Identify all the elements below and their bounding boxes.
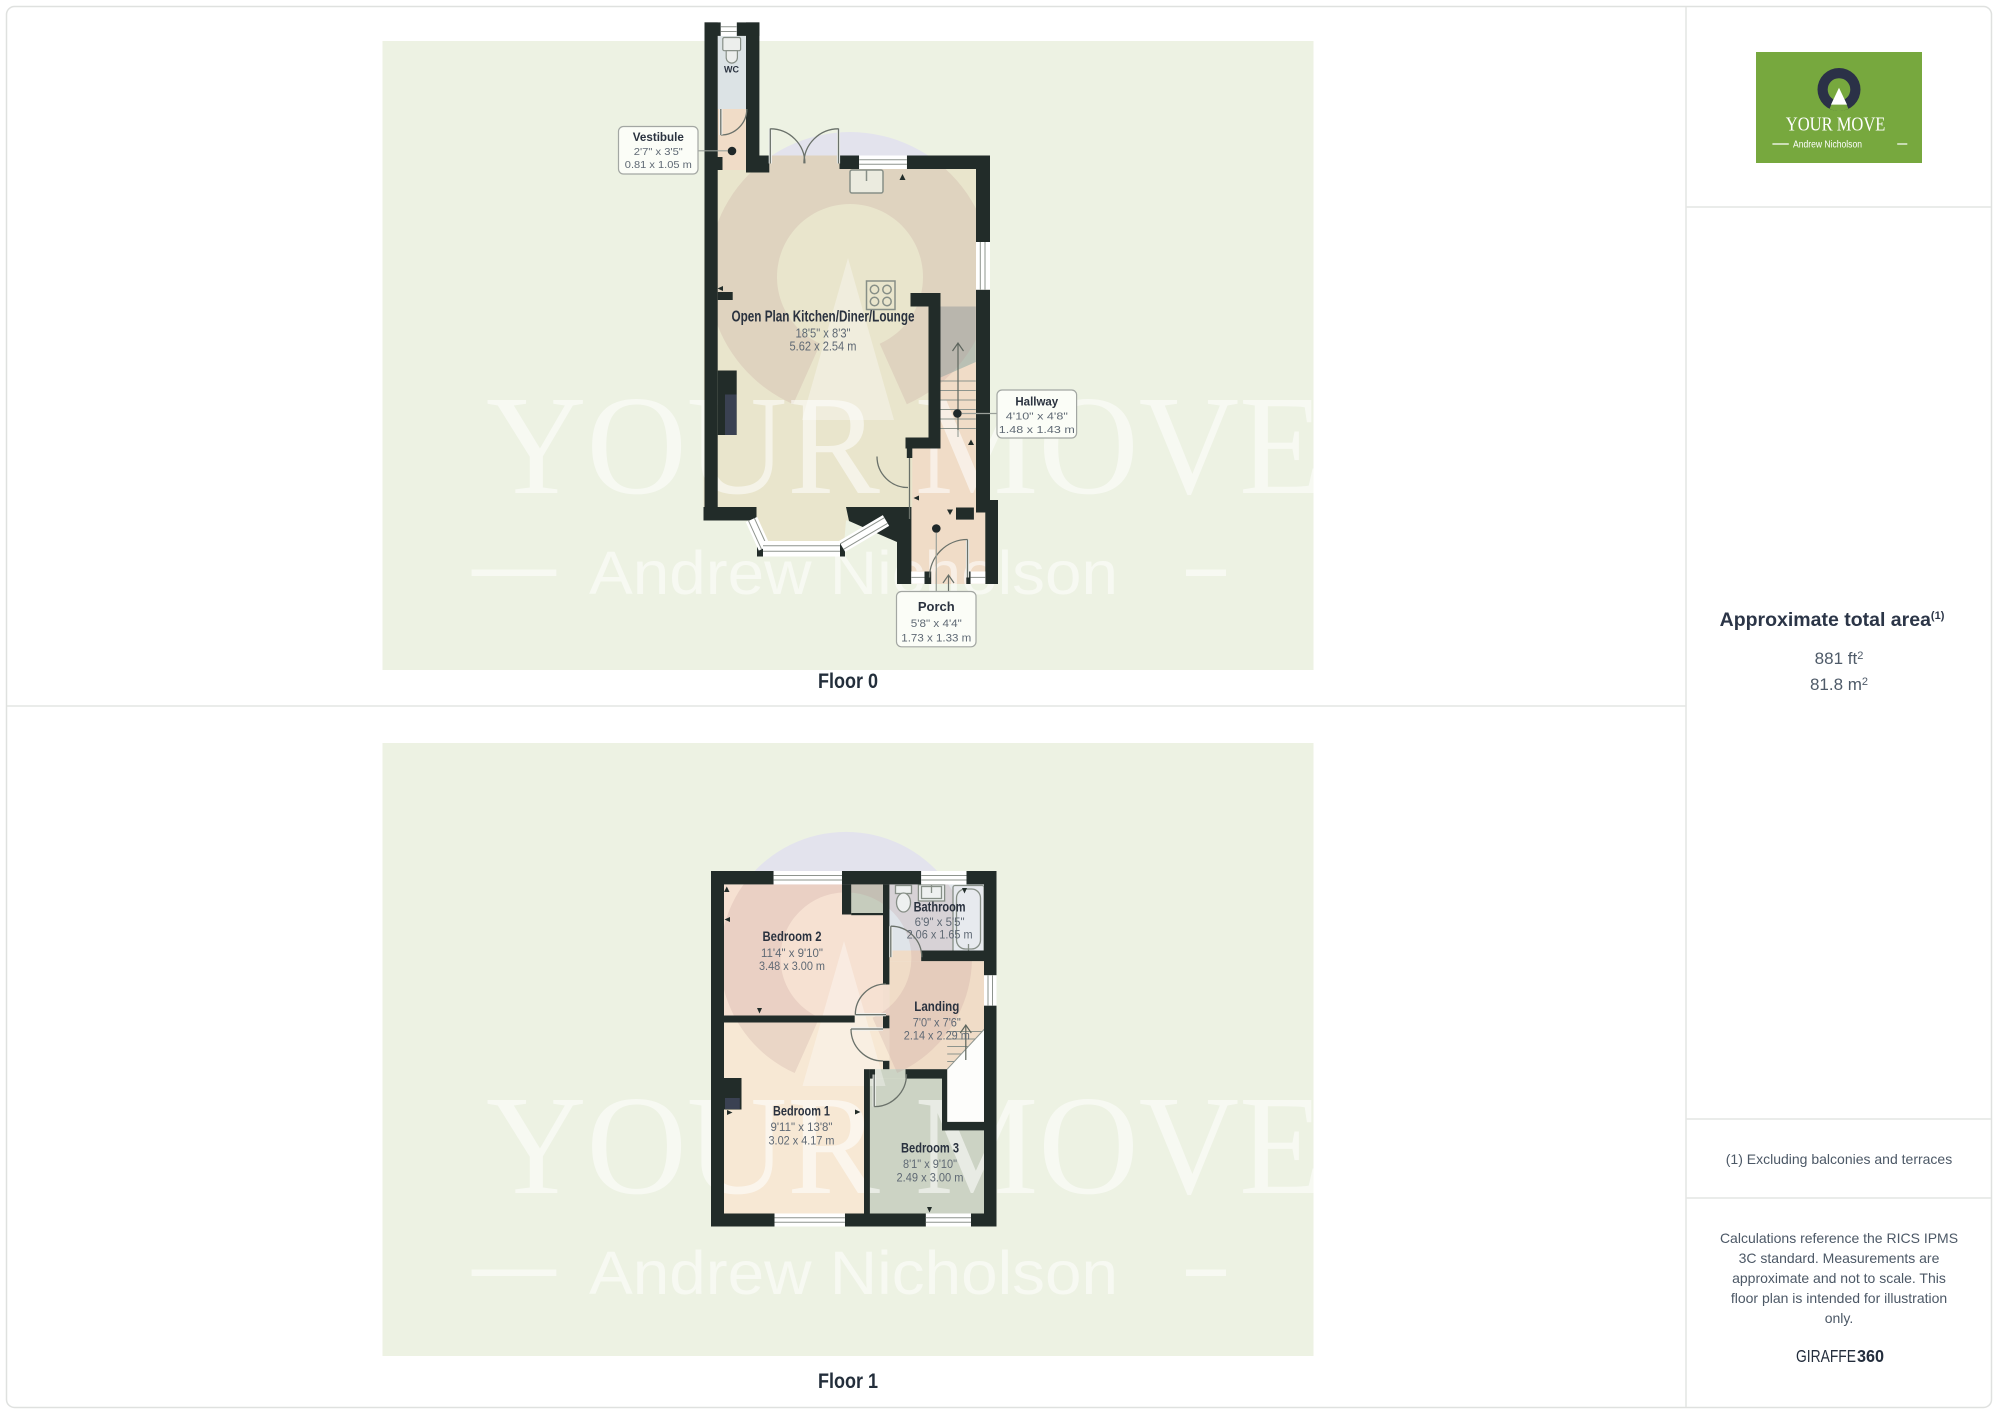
svg-text:Bedroom 3: Bedroom 3 <box>901 1141 959 1156</box>
svg-text:YOUR MOVE: YOUR MOVE <box>486 366 1324 524</box>
svg-text:WC: WC <box>724 65 739 75</box>
svg-text:Porch: Porch <box>918 599 955 614</box>
svg-text:18'5" x 8'3": 18'5" x 8'3" <box>796 327 851 341</box>
svg-text:GIRAFFE: GIRAFFE <box>1796 1346 1856 1366</box>
svg-text:only.: only. <box>1825 1310 1854 1326</box>
svg-text:6'9" x 5'5": 6'9" x 5'5" <box>915 917 965 929</box>
svg-text:Andrew Nicholson: Andrew Nicholson <box>1793 140 1862 151</box>
svg-text:2.06 x 1.65 m: 2.06 x 1.65 m <box>907 930 973 942</box>
svg-text:Bedroom 1: Bedroom 1 <box>773 1104 830 1119</box>
svg-text:Bedroom 2: Bedroom 2 <box>763 929 822 944</box>
svg-text:0.81 x 1.05 m: 0.81 x 1.05 m <box>625 159 692 171</box>
svg-text:Andrew Nicholson: Andrew Nicholson <box>589 539 1118 607</box>
svg-text:7'0" x 7'6": 7'0" x 7'6" <box>913 1018 961 1030</box>
svg-text:2.49 x 3.00 m: 2.49 x 3.00 m <box>897 1173 964 1185</box>
svg-text:5.62 x 2.54 m: 5.62 x 2.54 m <box>790 340 857 354</box>
svg-text:Floor 0: Floor 0 <box>818 670 878 693</box>
svg-text:YOUR MOVE: YOUR MOVE <box>1786 114 1886 136</box>
svg-text:Landing: Landing <box>914 999 959 1014</box>
svg-text:Vestibule: Vestibule <box>633 132 684 144</box>
svg-text:8'1" x 9'10": 8'1" x 9'10" <box>903 1159 957 1171</box>
svg-text:(1) Excluding balconies and te: (1) Excluding balconies and terraces <box>1726 1151 1952 1167</box>
svg-text:4'10" x 4'8": 4'10" x 4'8" <box>1006 411 1068 423</box>
svg-text:11'4" x 9'10": 11'4" x 9'10" <box>761 948 823 960</box>
svg-text:Hallway: Hallway <box>1015 397 1058 409</box>
svg-text:9'11" x 13'8": 9'11" x 13'8" <box>771 1122 833 1134</box>
svg-text:81.8 m2: 81.8 m2 <box>1810 675 1868 694</box>
svg-text:5'8" x 4'4": 5'8" x 4'4" <box>911 618 962 630</box>
svg-text:360: 360 <box>1857 1346 1884 1366</box>
svg-text:Floor 1: Floor 1 <box>818 1370 878 1393</box>
svg-text:3.48 x 3.00 m: 3.48 x 3.00 m <box>759 961 825 973</box>
svg-text:3C standard. Measurements are: 3C standard. Measurements are <box>1739 1250 1940 1266</box>
svg-text:Andrew Nicholson: Andrew Nicholson <box>589 1239 1118 1307</box>
svg-text:2.14 x 2.29 m: 2.14 x 2.29 m <box>904 1031 970 1043</box>
svg-text:3.02 x 4.17 m: 3.02 x 4.17 m <box>769 1136 835 1148</box>
svg-text:floor plan is intended for ill: floor plan is intended for illustration <box>1731 1290 1947 1306</box>
svg-text:881 ft2: 881 ft2 <box>1815 649 1864 668</box>
svg-text:Calculations reference the RIC: Calculations reference the RICS IPMS <box>1720 1230 1958 1246</box>
svg-text:Open Plan Kitchen/Diner/Lounge: Open Plan Kitchen/Diner/Lounge <box>732 309 915 326</box>
svg-text:1.73 x 1.33 m: 1.73 x 1.33 m <box>901 633 971 645</box>
svg-text:2'7" x 3'5": 2'7" x 3'5" <box>634 146 683 158</box>
svg-text:Approximate total area(1): Approximate total area(1) <box>1720 609 1945 631</box>
svg-text:approximate and not to scale.: approximate and not to scale. This <box>1732 1270 1946 1286</box>
svg-text:Bathroom: Bathroom <box>914 900 966 915</box>
svg-text:1.48 x 1.43 m: 1.48 x 1.43 m <box>999 424 1075 436</box>
